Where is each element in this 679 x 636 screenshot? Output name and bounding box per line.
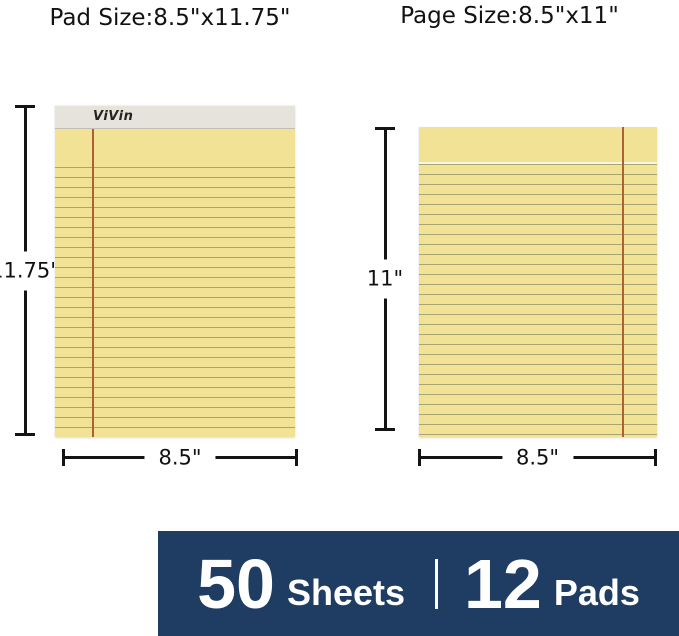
brand-logo: ViVin [93,109,133,124]
page-height-dimension-line: 11" [384,127,387,431]
page-size-title: Page Size:8.5"x11" [340,3,679,29]
sheets-count: 50 [197,549,275,619]
dimension-end-cap [62,449,65,466]
sheets-label: Sheets [287,575,405,611]
pad-size-title: Pad Size:8.5"x11.75" [0,5,340,31]
info-banner: 50 Sheets 12 Pads [158,531,679,636]
margin-line [622,127,624,437]
product-infographic: Pad Size:8.5"x11.75" Page Size:8.5"x11" … [0,0,679,636]
pad-binding-strip: ViVin [55,105,295,129]
page-height-label: 11" [364,260,406,299]
pad-paper [55,129,295,437]
single-page [419,127,657,437]
pads-count: 12 [464,549,542,619]
pad-height-label: 11.75" [0,251,63,290]
dimension-end-cap [654,449,657,466]
pad-width-label: 8.5" [144,445,215,470]
dimension-end-cap [15,433,35,436]
pads-label: Pads [554,575,640,611]
legal-pad: ViVin [55,105,295,437]
banner-divider [435,559,438,609]
dimension-end-cap [15,105,35,108]
dimension-end-cap [375,127,395,130]
ruled-lines [55,158,295,437]
dimension-end-cap [295,449,298,466]
page-width-label: 8.5" [502,445,573,470]
dimension-end-cap [418,449,421,466]
pad-width-dimension-line: 8.5" [62,456,298,459]
dimension-end-cap [375,428,395,431]
pad-height-dimension-line: 11.75" [24,105,27,436]
margin-line [92,129,94,437]
page-width-dimension-line: 8.5" [418,456,657,459]
